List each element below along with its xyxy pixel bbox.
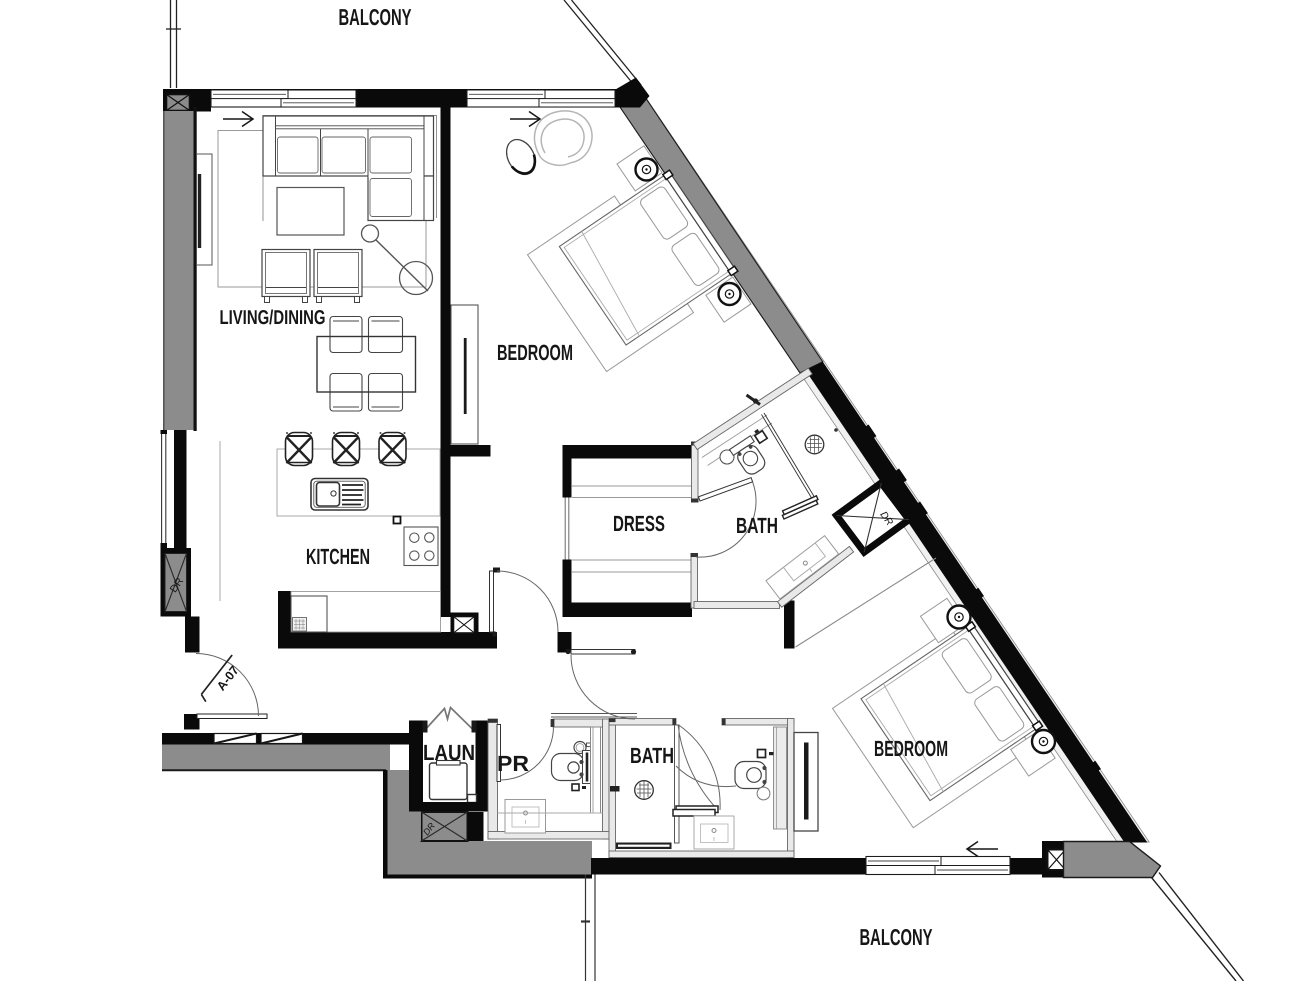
svg-text:BALCONY: BALCONY [860, 924, 933, 950]
svg-text:BALCONY: BALCONY [339, 4, 412, 30]
svg-text:LIVING/DINING: LIVING/DINING [220, 307, 326, 329]
svg-text:PR: PR [497, 751, 529, 776]
svg-text:DRESS: DRESS [613, 511, 665, 536]
svg-text:BEDROOM: BEDROOM [497, 340, 573, 365]
svg-text:BEDROOM: BEDROOM [874, 736, 948, 761]
svg-text:LAUN: LAUN [423, 740, 475, 765]
svg-text:KITCHEN: KITCHEN [306, 544, 370, 569]
svg-text:BATH: BATH [736, 513, 778, 538]
svg-text:BATH: BATH [630, 743, 674, 768]
